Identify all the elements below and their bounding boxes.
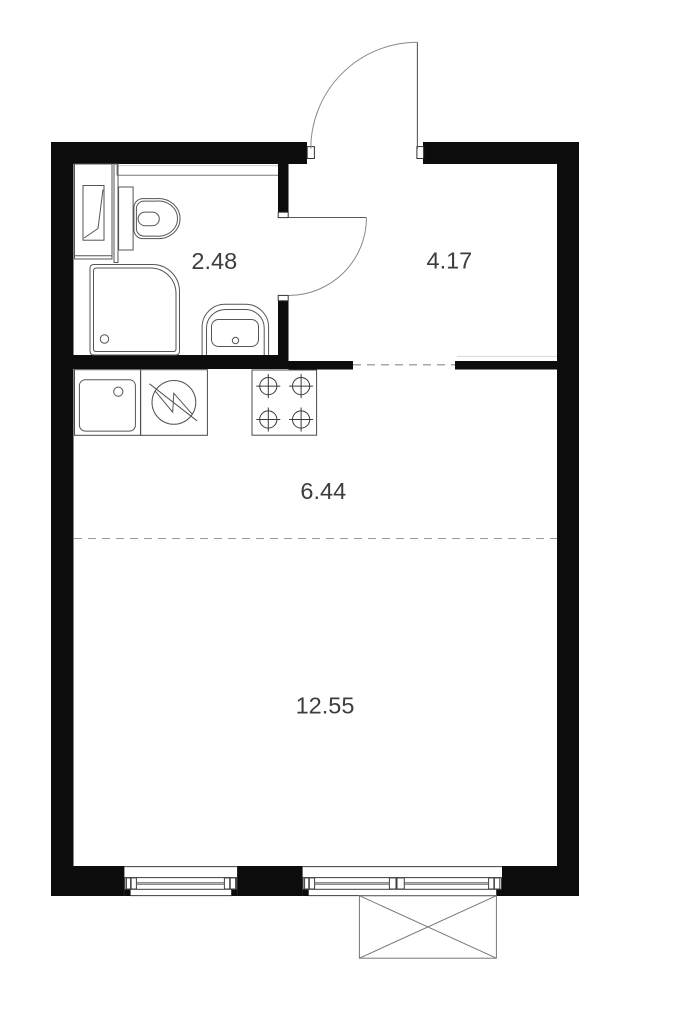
svg-text:12.55: 12.55: [296, 693, 355, 719]
svg-text:4.17: 4.17: [427, 248, 473, 274]
svg-text:2.48: 2.48: [191, 248, 237, 274]
svg-text:6.44: 6.44: [300, 478, 346, 504]
